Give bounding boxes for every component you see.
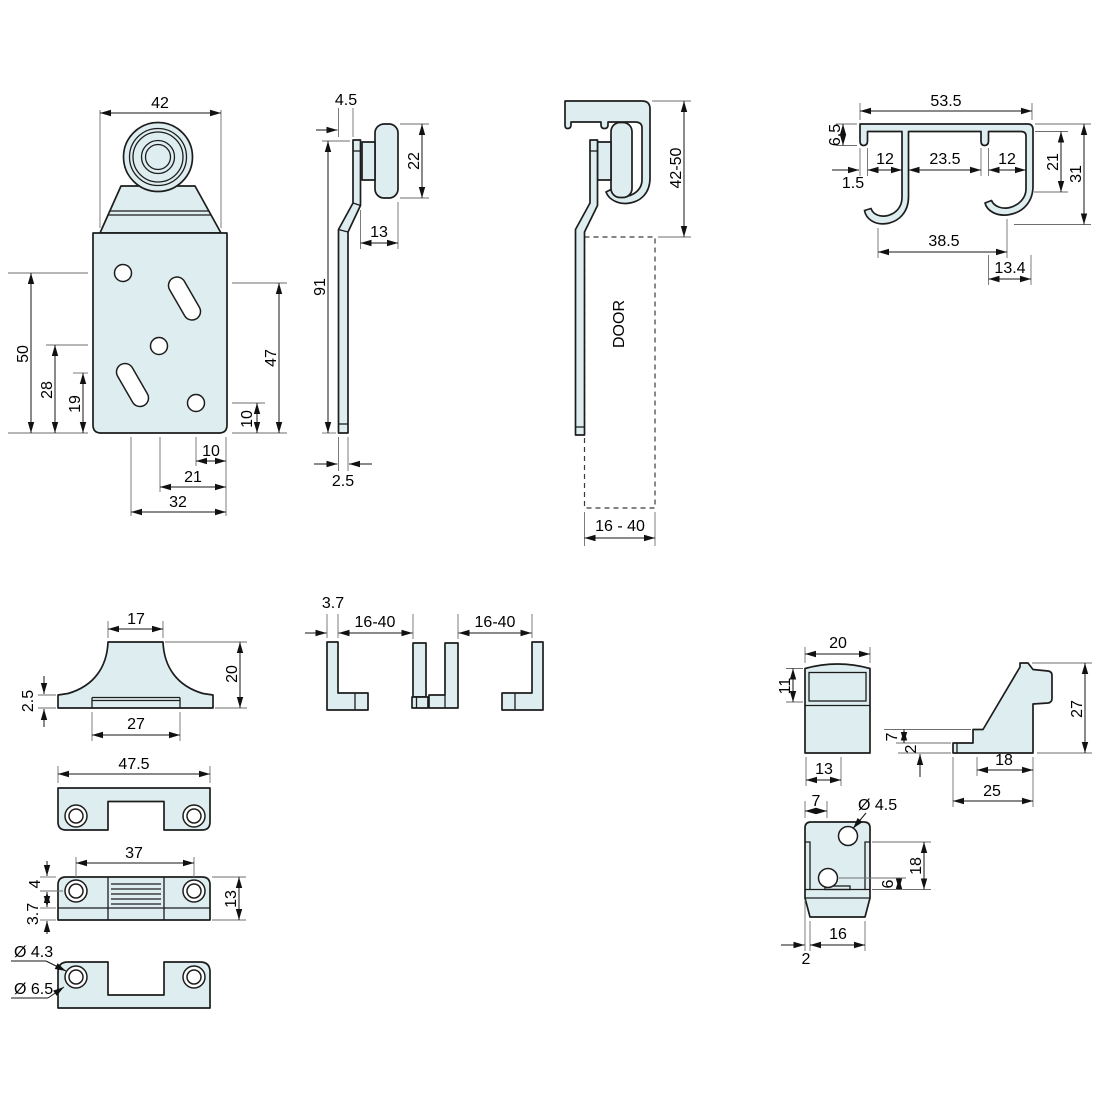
roller-in-track xyxy=(611,123,632,198)
dim-label: 3.7 xyxy=(25,903,42,925)
dim-label: 20 xyxy=(224,665,241,683)
dim-label: 38.5 xyxy=(928,233,959,250)
dim-label: 18 xyxy=(908,857,925,875)
dim-label: 21 xyxy=(1045,153,1062,171)
dim-label: 12 xyxy=(998,151,1016,168)
dim-label: 42 xyxy=(151,95,169,112)
dim-label: 6.5 xyxy=(827,124,844,146)
stop-wedge xyxy=(953,663,1052,753)
dim-label: 2.5 xyxy=(20,690,37,712)
diameter-label: Ø 4.5 xyxy=(858,797,897,814)
roller-hub xyxy=(598,142,612,180)
bracket-top-view: 47.5 xyxy=(58,756,210,830)
dim-label: 28 xyxy=(39,381,56,399)
clip-left xyxy=(327,642,368,710)
dim-label: 11 xyxy=(777,678,794,695)
door-outline xyxy=(585,237,656,508)
dim-label: 16-40 xyxy=(475,614,516,631)
ball-catch xyxy=(819,869,838,888)
door-stop-side-view: 27 18 25 7 2 xyxy=(884,663,1092,807)
dim-label: 17 xyxy=(127,611,145,628)
dim-label: 13 xyxy=(223,890,240,908)
roller-wheel-side xyxy=(375,124,398,198)
dim-label: 21 xyxy=(184,469,202,486)
assembly-section-view: DOOR 42-50 16 - 40 xyxy=(565,101,691,546)
dim-label: 7 xyxy=(884,732,901,741)
dim-label: 47 xyxy=(263,349,280,367)
hanger-plate xyxy=(576,140,598,435)
clip-middle-left-foot xyxy=(412,697,428,708)
roller-bracket-side-view: 4.5 22 13 91 2.5 xyxy=(312,92,429,490)
guide-clips-view: 3.7 16-40 16-40 xyxy=(305,595,543,710)
dim-label: 27 xyxy=(127,716,145,733)
screw-hole xyxy=(151,338,168,355)
dim-label: 6 xyxy=(880,879,897,888)
dim-label: 13 xyxy=(370,224,388,241)
diameter-label: Ø 6.5 xyxy=(14,981,53,998)
dim-label: 2.5 xyxy=(332,473,354,490)
dim-label: 19 xyxy=(67,395,84,413)
dim-label: 53.5 xyxy=(930,93,961,110)
track-profile xyxy=(860,124,1033,224)
dim-label: 31 xyxy=(1068,165,1085,183)
catch-body xyxy=(805,822,870,917)
bracket-plate-side xyxy=(339,140,361,433)
bracket-neck xyxy=(100,186,221,233)
dim-label: 13.4 xyxy=(994,260,1025,277)
dim-label: 47.5 xyxy=(118,756,149,773)
dim-label: 20 xyxy=(829,635,847,652)
dim-label: 12 xyxy=(876,151,894,168)
dim-label: 42-50 xyxy=(668,147,685,188)
bracket-bottom-view: Ø 4.3 Ø 6.5 xyxy=(11,944,210,1008)
dim-label: 16 xyxy=(829,926,847,943)
dim-label: 2 xyxy=(903,744,920,753)
track-profile-view: 53.5 6.5 12 23.5 12 1.5 21 31 38.5 xyxy=(827,93,1091,285)
dim-label: 4.5 xyxy=(335,92,357,109)
dim-label: 16-40 xyxy=(355,614,396,631)
catch-bracket-view: Ø 4.5 7 18 6 16 2 xyxy=(781,793,931,968)
diameter-label: Ø 4.3 xyxy=(14,944,53,961)
dim-label: 3.7 xyxy=(322,595,344,612)
dim-label: 91 xyxy=(312,278,329,296)
dim-label: 10 xyxy=(202,443,220,460)
dim-label: 23.5 xyxy=(929,151,960,168)
roller-wheel xyxy=(124,123,193,192)
dim-label: 7 xyxy=(812,793,821,810)
dim-label: 1.5 xyxy=(842,175,864,192)
dim-label: 10 xyxy=(239,410,256,428)
clip-right xyxy=(502,642,543,710)
screw-hole xyxy=(188,395,205,412)
clip-middle-right xyxy=(429,643,458,708)
floor-guide-view: 17 20 2.5 27 xyxy=(20,611,247,741)
dim-label: 18 xyxy=(995,752,1013,769)
dim-label: 50 xyxy=(15,345,32,363)
stop-body xyxy=(805,664,870,753)
dim-label: 2 xyxy=(802,951,811,968)
bracket-plate xyxy=(93,233,227,433)
dim-label: 13 xyxy=(815,761,833,778)
roller-bracket-front-view: 42 50 28 19 47 10 10 21 32 xyxy=(8,95,287,516)
technical-drawing: 42 50 28 19 47 10 10 21 32 xyxy=(0,0,1100,1100)
bracket-front-view: 37 4 3.7 13 xyxy=(25,845,246,934)
dim-label: 25 xyxy=(983,783,1001,800)
roller-hub xyxy=(362,142,375,180)
dim-label: 4 xyxy=(27,879,44,888)
mount-hole xyxy=(839,827,858,846)
door-label: DOOR xyxy=(611,300,628,348)
dim-label: 37 xyxy=(125,845,143,862)
clip-middle-left-bar xyxy=(413,643,426,697)
door-stop-front-view: 20 11 13 xyxy=(777,635,870,786)
screw-hole xyxy=(115,265,132,282)
dim-label: 32 xyxy=(169,494,187,511)
dim-label: 16 - 40 xyxy=(595,518,645,535)
dim-label: 22 xyxy=(406,152,423,170)
dim-label: 27 xyxy=(1069,700,1086,718)
